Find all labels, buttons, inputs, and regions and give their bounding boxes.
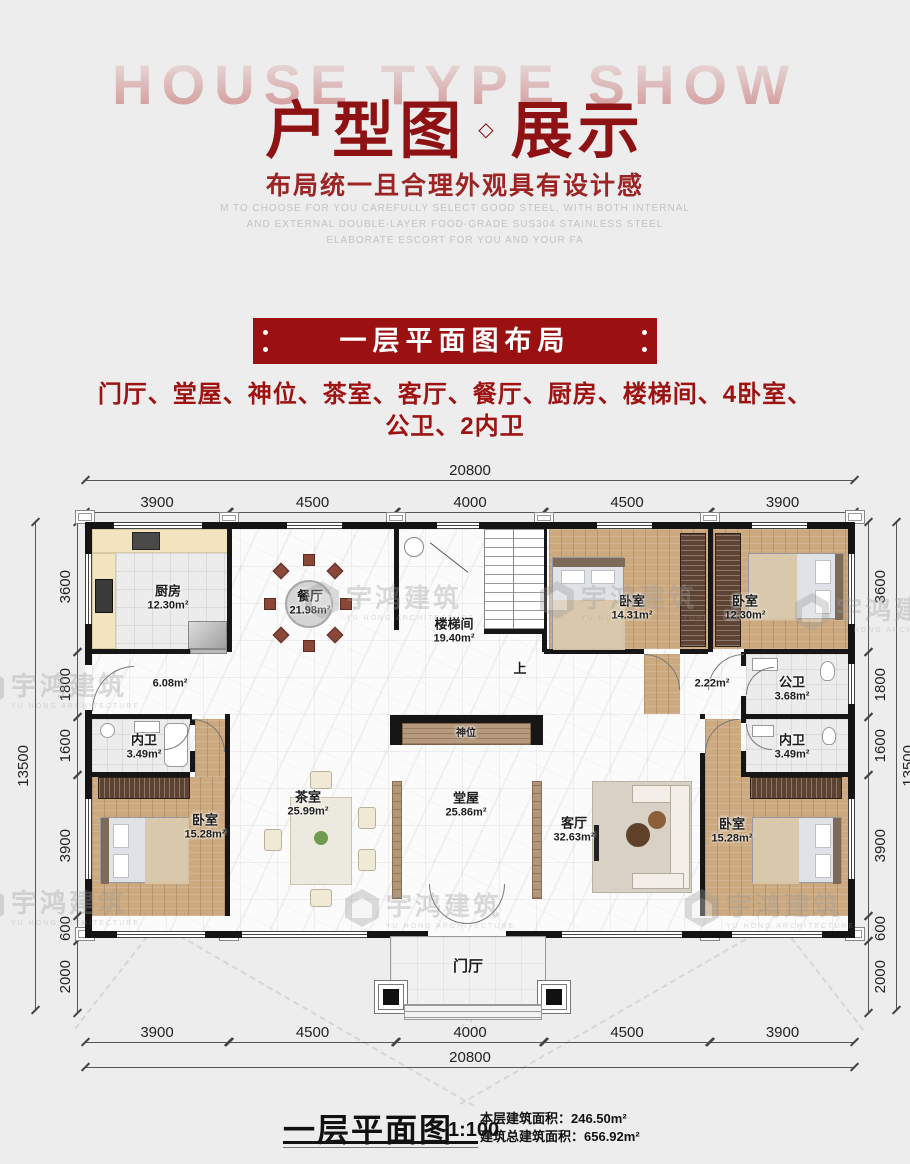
room-label-corridor-right: 2.22m² [695,677,730,690]
window [114,522,202,529]
room-label-bedroom-topright: 卧室12.30m² [725,594,766,623]
dining-chair [264,598,276,610]
room-label-main-hall: 堂屋25.86m² [446,791,487,820]
altar-end [390,715,402,745]
banner-dot [642,347,647,352]
stair-up-label: 上 [513,661,526,677]
altar-end [531,715,543,745]
door-opening [85,665,92,710]
wall [225,714,230,916]
room-label-kitchen: 厨房12.30m² [148,584,189,613]
dim-label: 4500 [544,1021,710,1043]
dim-label: 4000 [396,491,544,513]
dim-label: 1600 [57,729,74,762]
caption-total-area: 建筑总建筑面积：656.92m² [480,1128,640,1146]
window [287,522,342,529]
dimension-top-total: 20800 [85,459,855,481]
dim-label: 1600 [872,729,889,762]
dimension-right-segments: 3600 1800 1600 3900 600 2000 [868,522,892,1010]
dim-label: 2000 [57,960,74,993]
stove [95,579,113,613]
dining-chair [327,563,344,580]
room-label-bedroom-right: 卧室15.28m² [712,817,753,846]
toilet [820,661,835,681]
dimension-right-total: 13500 [896,522,910,1010]
toilet [822,727,836,745]
caption-floor-area: 本层建筑面积：246.50m² [480,1110,627,1128]
window [848,664,855,704]
dim-label: 3900 [710,1021,855,1043]
room-summary: 门厅、堂屋、神位、茶室、客厅、餐厅、厨房、楼梯间、4卧室、 公卫、2内卫 [0,379,910,443]
toilet [100,723,115,738]
window [732,931,822,938]
dim-label: 3600 [872,570,889,603]
page-title-left: 户型图 [265,97,466,166]
window [562,931,682,938]
diamond-icon: ◇ [466,119,510,141]
dimension-bottom-total: 20800 [85,1046,855,1068]
yuhong-logo-icon [0,669,4,707]
dim-label: 4000 [396,1021,544,1043]
kitchen-sliding-door [190,649,227,654]
page-title-right: 展示 [511,97,645,166]
room-label-entrance: 门厅 [453,958,483,976]
dim-label: 1800 [872,668,889,701]
dim-label: 3900 [57,829,74,862]
tea-chair [310,771,332,789]
dim-label: 600 [57,916,74,941]
wardrobe [750,777,842,799]
dining-chair [273,563,290,580]
building-interior: 神位 [92,529,848,931]
dim-label: 3900 [85,1021,229,1043]
floor-plan: 20800 3900 4500 4000 4500 3900 3900 4500… [0,455,910,1164]
wardrobe [680,533,706,647]
dimension-bottom-segments: 3900 4500 4000 4500 3900 [85,1021,855,1043]
wardrobe [98,777,190,799]
section-banner-title: 一层平面图布局 [340,326,571,356]
porch-column [537,980,571,1014]
tea-chair [358,807,376,829]
description-line: AND EXTERNAL DOUBLE-LAYER FOOD-GRADE SUS… [0,217,910,233]
room-label-inner-bath-left: 内卫3.49m² [127,733,162,762]
description-line: ELABORATE ESCORT FOR YOU AND YOUR FA [0,233,910,249]
porch-column [374,980,408,1014]
coffee-table [626,823,650,847]
yuhong-logo-icon [0,886,4,924]
bed [100,817,188,883]
tea-table-plant [314,831,328,845]
wall [92,714,192,719]
dim-label: 3900 [872,829,889,862]
dim-label: 1800 [57,668,74,701]
kitchen-counter-top [92,529,229,553]
room-label-inner-bath-right: 内卫3.49m² [775,733,810,762]
window [117,931,205,938]
dim-label: 20800 [85,1046,855,1068]
stair-direction-line [430,542,468,572]
page-title: 户型图◇展示 [0,80,910,170]
door-arc [92,666,134,711]
altar-wall [390,715,543,723]
wall [700,753,705,916]
wall [484,629,544,634]
window [242,931,367,938]
dimension-left-total: 13500 [12,522,36,1010]
caption-title: 一层平面图 [283,1105,453,1151]
dim-label: 4500 [229,491,396,513]
page-subtitle: 布局统一且合理外观具有设计感 [0,166,910,202]
window [85,554,92,624]
caption-underline-thin [283,1147,478,1148]
room-summary-line1: 门厅、堂屋、神位、茶室、客厅、餐厅、厨房、楼梯间、4卧室、 [0,379,910,411]
dining-chair [303,640,315,652]
dim-label: 13500 [15,745,32,787]
porch-steps [404,1004,542,1020]
room-label-public-bath: 公卫3.68m² [775,675,810,704]
wall [92,649,190,654]
bed [752,817,842,883]
wall [744,649,848,654]
tea-chair [264,829,282,851]
banner-dot [642,330,647,335]
building-outline: 神位 [85,522,855,938]
room-label-dining: 餐厅21.98m² [290,589,331,618]
room-summary-line2: 公卫、2内卫 [0,411,910,443]
sofa [632,873,684,889]
banner-dot [263,330,268,335]
kitchen-cabinet [188,621,227,649]
hall-pillar [392,781,402,899]
dim-label: 2000 [872,960,889,993]
wall [190,751,195,772]
room-label-stairwell: 楼梯间19.40m² [434,617,475,646]
wall [394,529,399,630]
wall [227,529,232,652]
header-description: M TO CHOOSE FOR YOU CAREFULLY SELECT GOO… [0,201,910,249]
dining-chair [340,598,352,610]
fridge [132,532,160,550]
wall [680,649,708,654]
wall [708,529,713,652]
section-banner: 一层平面图布局 [253,318,657,364]
description-line: M TO CHOOSE FOR YOU CAREFULLY SELECT GOO… [0,201,910,217]
dim-label: 600 [872,916,889,941]
window [85,799,92,879]
room-label-living-room: 客厅32.63m² [554,816,595,845]
tea-chair [358,849,376,871]
wall [741,714,848,719]
main-door-arc [429,884,467,924]
window [437,522,479,529]
wall [700,714,705,719]
hall-pillar [532,781,542,899]
staircase [484,529,544,629]
window [848,799,855,879]
staircase-divider [513,529,514,629]
dim-label: 20800 [85,459,855,481]
altar-label: 神位 [456,728,476,740]
room-label-bedroom-mid: 卧室14.31m² [612,594,653,623]
banner-dot [263,347,268,352]
dining-chair [327,627,344,644]
wardrobe [715,533,741,647]
sink [134,721,160,733]
dimension-top-segments: 3900 4500 4000 4500 3900 [85,491,855,513]
dim-label: 3900 [85,491,229,513]
side-table [648,811,666,829]
window [597,522,652,529]
window [848,554,855,624]
tea-chair [310,889,332,907]
dining-chair [303,554,315,566]
dim-label: 3900 [710,491,855,513]
dim-label: 4500 [544,491,710,513]
tv [594,825,599,861]
main-door-arc [467,884,505,924]
dim-label: 13500 [900,745,910,787]
room-label-hall-left: 6.08m² [153,677,188,690]
window [752,522,807,529]
dim-label: 3600 [57,570,74,603]
stair-round-object [404,537,424,557]
room-label-bedroom-left: 卧室15.28m² [185,813,226,842]
dim-label: 4500 [229,1021,396,1043]
dining-chair [273,627,290,644]
room-label-tea-room: 茶室25.99m² [288,790,329,819]
